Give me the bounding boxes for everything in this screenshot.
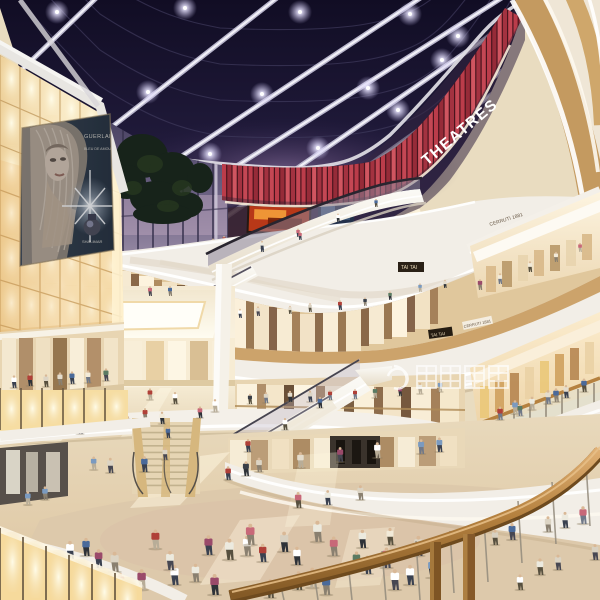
svg-text:TAI TAI: TAI TAI <box>401 265 417 271</box>
